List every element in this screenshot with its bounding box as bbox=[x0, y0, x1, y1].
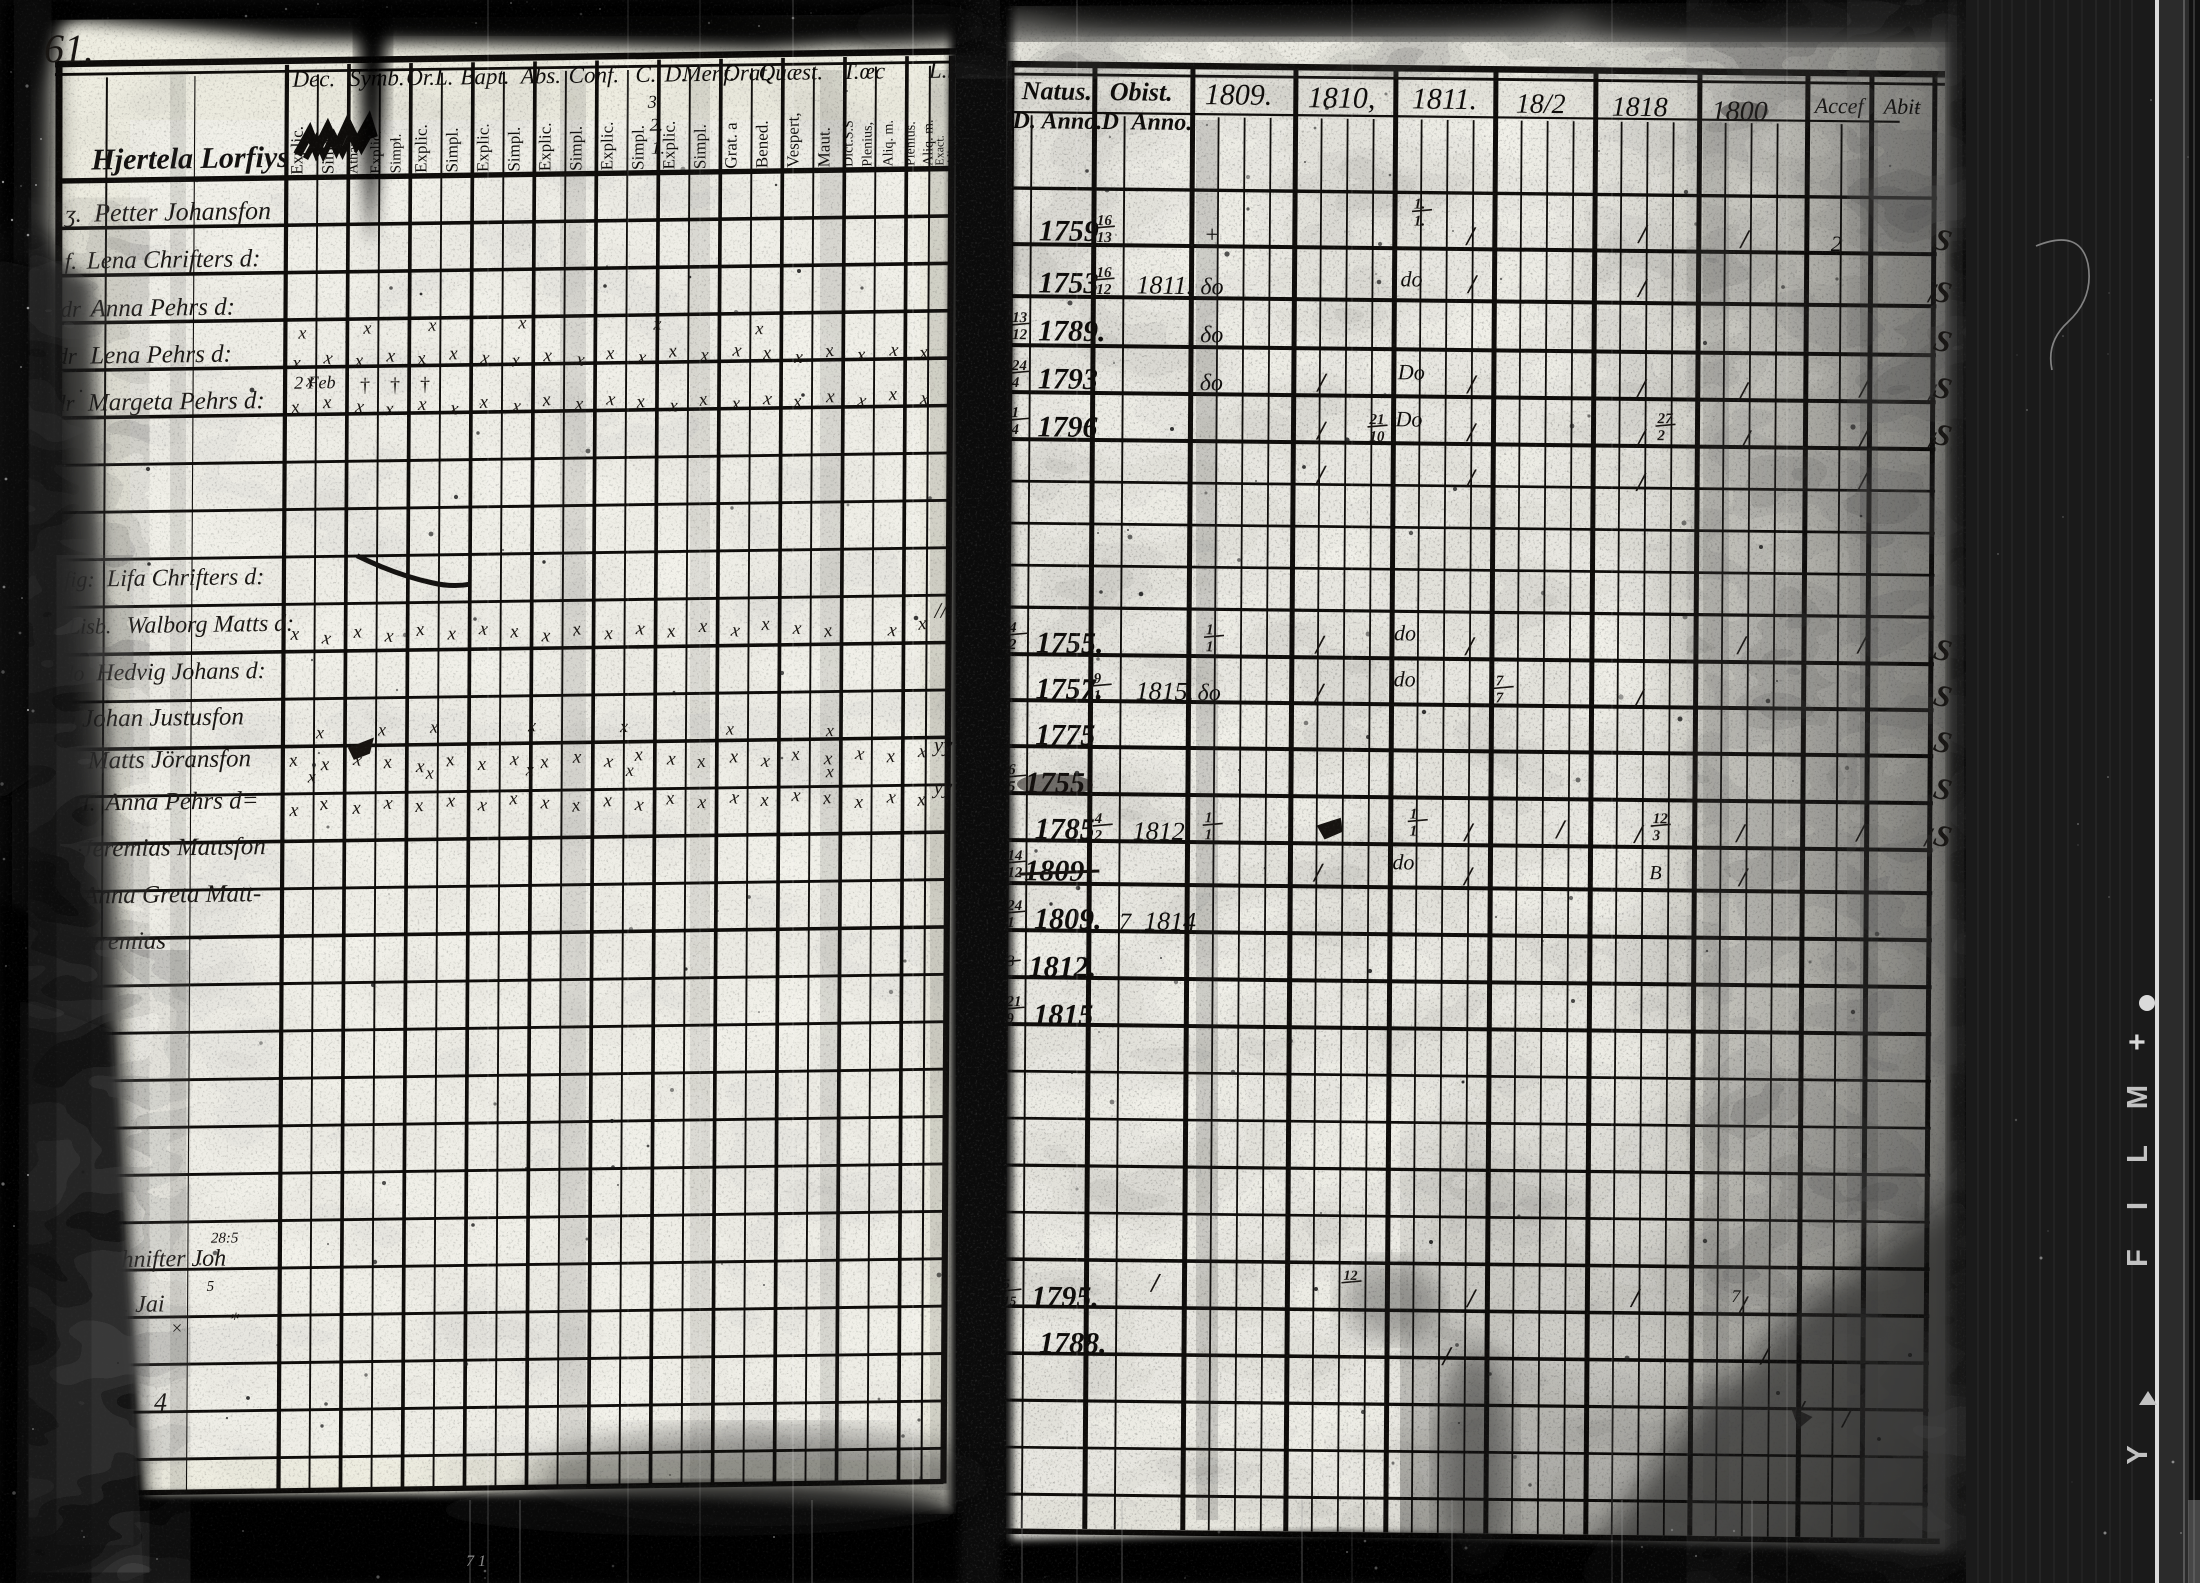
svg-text:I: I bbox=[2122, 1202, 2154, 1210]
svg-text:L: L bbox=[2122, 1145, 2154, 1163]
svg-text:Y: Y bbox=[2122, 1445, 2154, 1464]
svg-text:7 1: 7 1 bbox=[466, 1553, 486, 1570]
svg-text:M: M bbox=[2122, 1085, 2154, 1109]
svg-text:+: + bbox=[2121, 1033, 2154, 1051]
svg-text:F: F bbox=[2122, 1249, 2154, 1267]
